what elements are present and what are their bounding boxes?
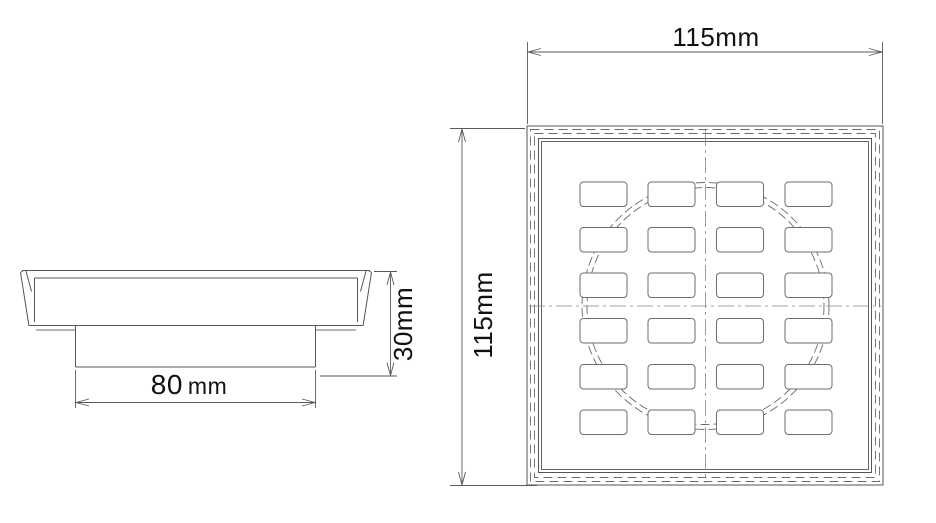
side-view-width-dimension-label: 80mm	[129, 372, 249, 399]
top-view-drawing	[450, 42, 883, 486]
top-view-width-dimension-label: 115mm	[656, 24, 776, 50]
top-view-width-dimension	[528, 42, 883, 124]
side-view-height-dimension-label: 30mm	[390, 284, 416, 364]
side-view-height-dimension	[320, 272, 397, 377]
side-view-width-value: 80	[151, 369, 183, 400]
drawing-linework	[0, 0, 936, 523]
side-view-flange	[21, 271, 372, 331]
side-view-width-unit: mm	[188, 373, 227, 399]
top-view-height-dimension-label: 115mm	[470, 270, 496, 360]
technical-drawing-canvas: 115mm 115mm 80mm 30mm	[0, 0, 936, 523]
side-view-body	[76, 326, 316, 368]
